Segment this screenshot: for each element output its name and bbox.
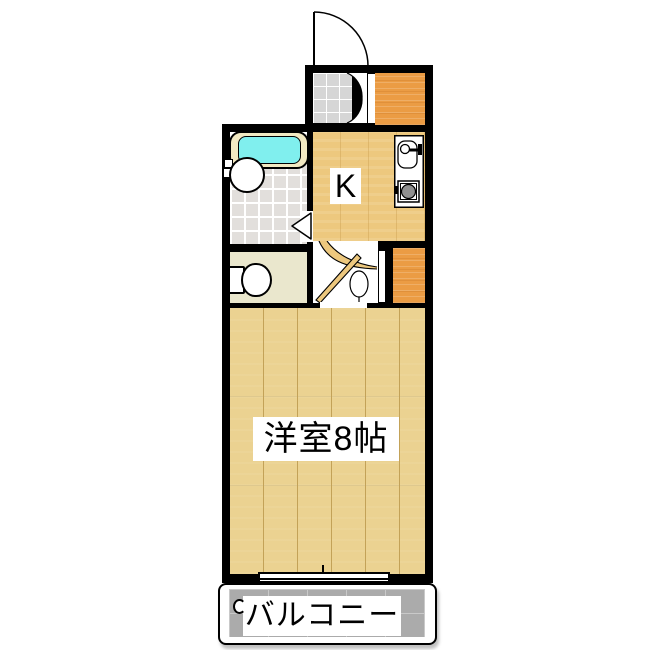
kitchen-label-text: K	[335, 170, 356, 202]
closet-door-panel	[378, 250, 386, 303]
toilet-bowl-icon	[241, 263, 272, 297]
floorplan-canvas: K 洋室8帖 バルコニー	[0, 0, 650, 650]
balcony-label-text: バルコニー	[245, 601, 399, 631]
balcony-label: バルコニー	[243, 596, 401, 636]
balcony-circle-mark	[233, 599, 246, 614]
bathroom-door-icon	[291, 212, 312, 240]
closet-top	[375, 73, 425, 125]
kitchen-counter	[394, 135, 424, 208]
western-room-label-text: 洋室8帖	[264, 422, 389, 456]
western-room-label: 洋室8帖	[253, 417, 399, 461]
washbasin-icon	[229, 157, 265, 193]
western-room-door-opening	[320, 302, 367, 308]
hallway-doors	[313, 241, 378, 303]
kitchen-label: K	[330, 168, 361, 204]
balcony-window-icon	[258, 572, 390, 583]
entrance-door-icon	[303, 6, 379, 66]
closet-middle	[393, 248, 425, 303]
shoe-closet-double-door-icon	[346, 73, 367, 123]
